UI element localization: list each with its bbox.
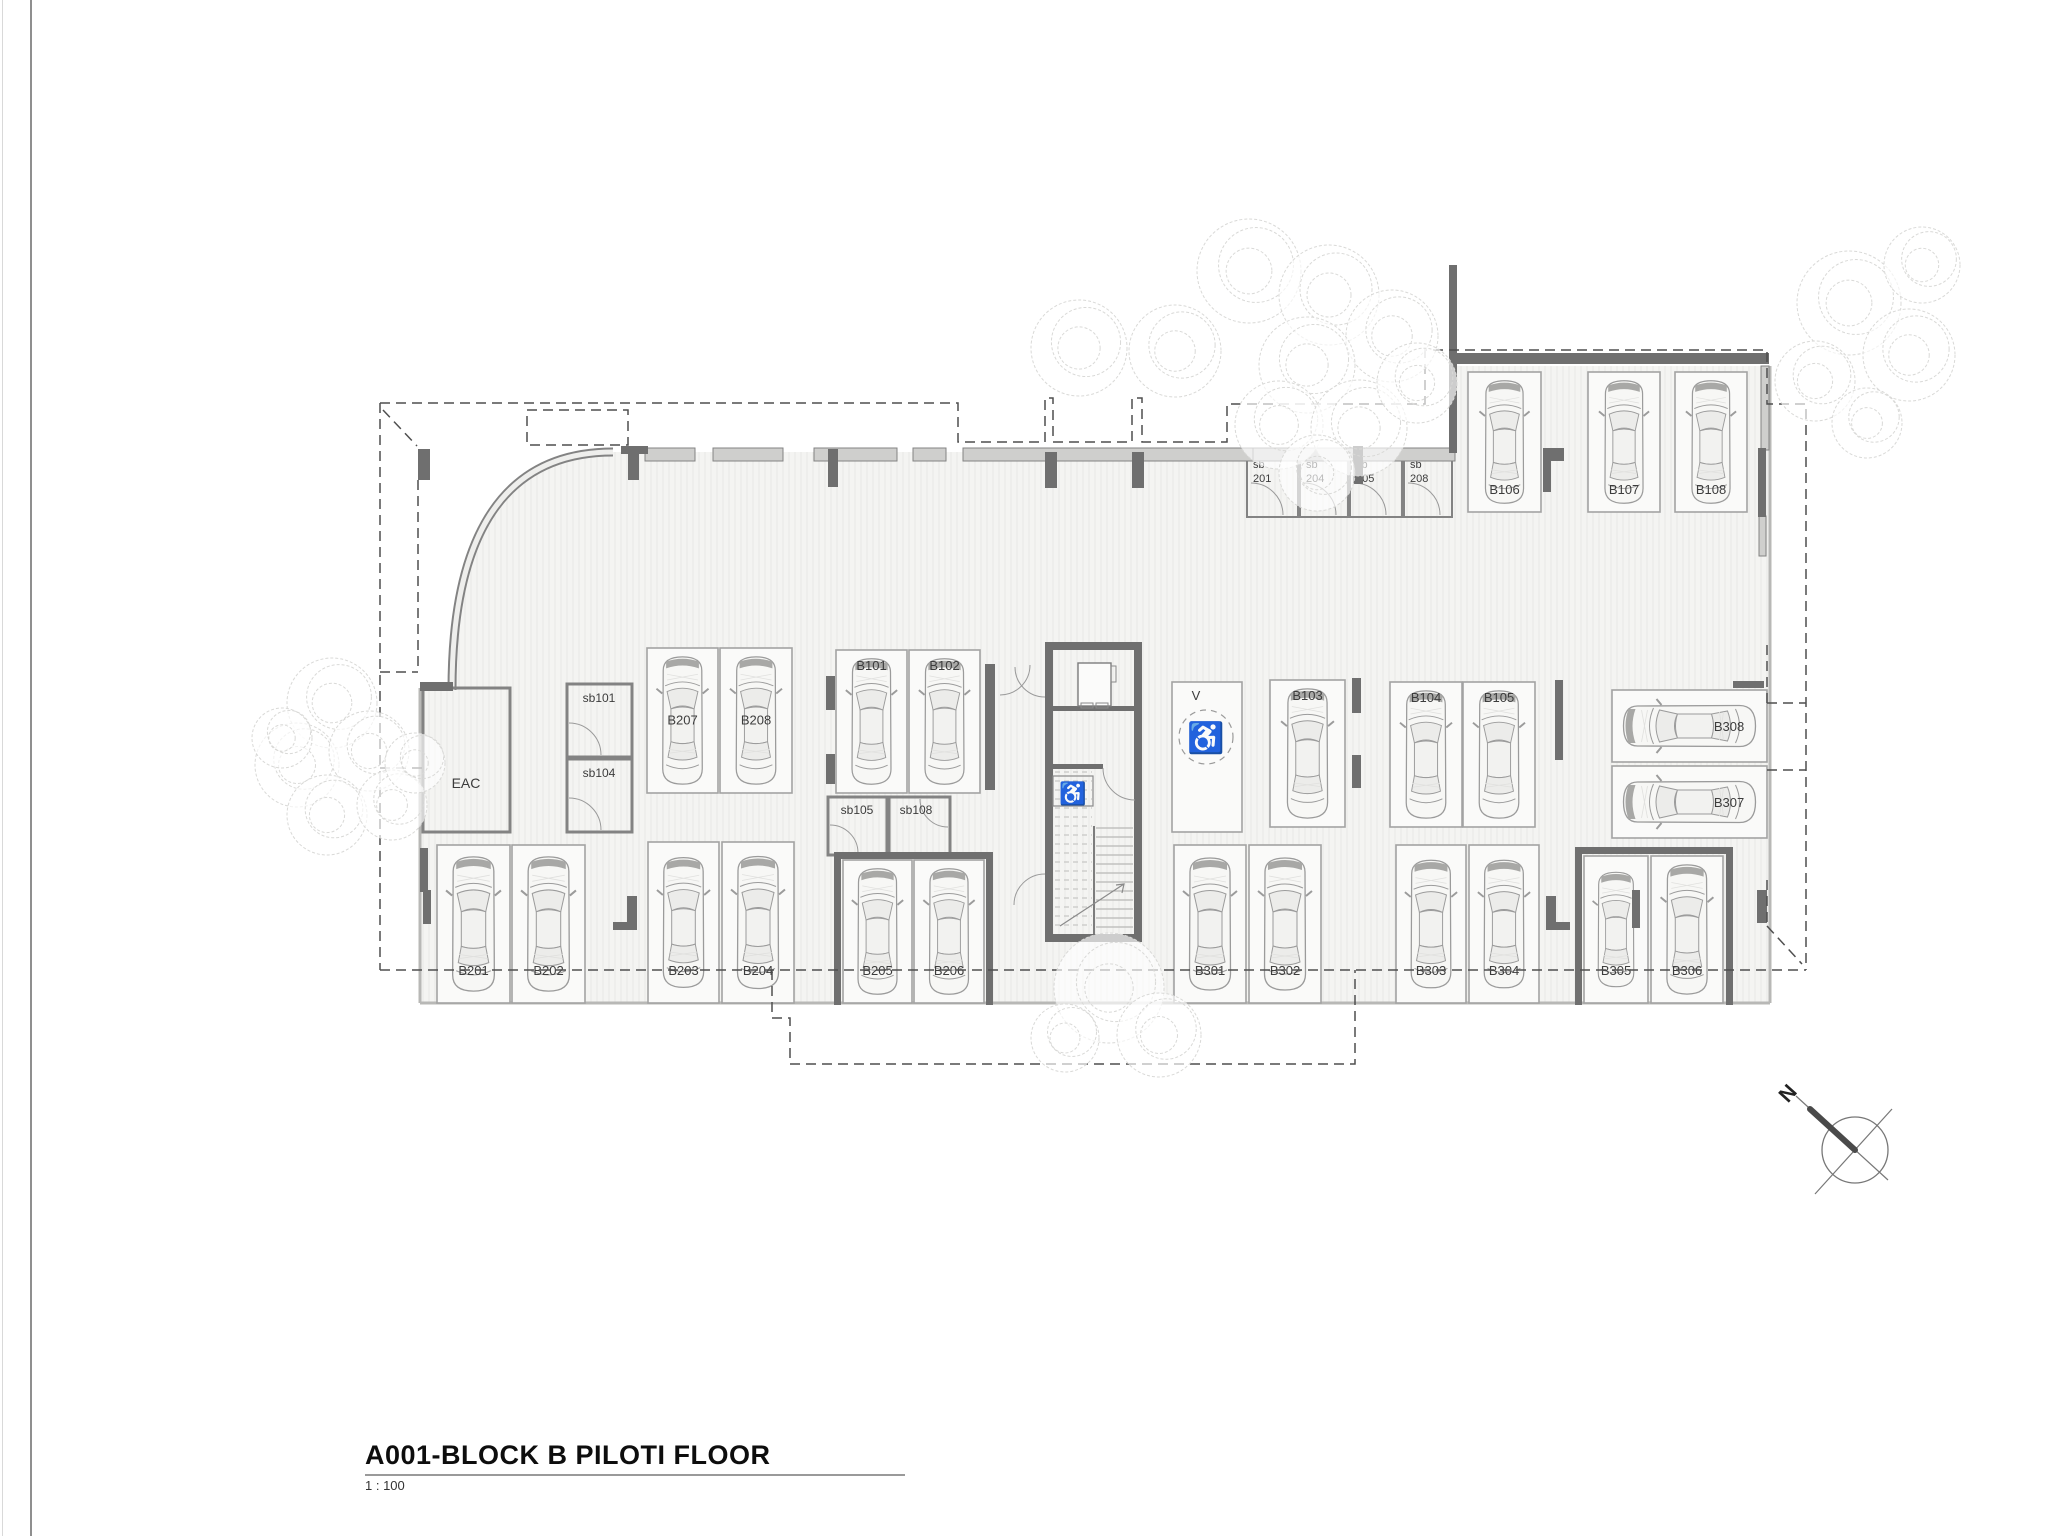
wall-column: [1575, 847, 1733, 854]
parking-stall-B302: B302: [1249, 845, 1321, 1003]
wall-column: [834, 852, 992, 859]
wall: [713, 448, 783, 461]
room-label: sb105: [841, 803, 874, 817]
parking-stall-B104: B104: [1390, 682, 1462, 827]
wall-column: [418, 449, 430, 480]
wall-column: [1758, 448, 1766, 517]
wall-column: [423, 890, 431, 924]
wall-column: [1045, 642, 1053, 942]
tree-icon: [1832, 388, 1902, 458]
parking-stall-B206: B206: [914, 860, 984, 1003]
wall-column: [1352, 755, 1361, 788]
stall-label: B102: [929, 658, 959, 673]
room-label: EAC: [452, 775, 481, 791]
wall-column: [1543, 448, 1564, 461]
wall-column: [1726, 847, 1733, 1005]
parking-stall-B107: B107: [1588, 372, 1660, 512]
wall-column: [1045, 764, 1103, 769]
parking-stall-B303: B303: [1396, 845, 1466, 1003]
tree-icon: [1377, 343, 1457, 423]
parking-stall-B203: B203: [648, 842, 719, 1003]
wall-column: [613, 922, 637, 930]
wall-column: [420, 682, 453, 691]
room-label: sb108: [900, 803, 933, 817]
drawing-scale: 1 : 100: [365, 1478, 910, 1493]
wall-column: [1053, 706, 1135, 711]
tree-icon: [385, 733, 445, 793]
parking-stall-B308: B308: [1612, 690, 1767, 762]
tree-icon: [1117, 993, 1201, 1077]
wall-column: [985, 664, 995, 790]
wheelchair-icon: ♿: [1059, 781, 1086, 806]
wall-column: [1575, 847, 1582, 1005]
stall-label: B105: [1484, 690, 1514, 705]
stall-label: V: [1192, 688, 1201, 703]
wall-column: [1452, 353, 1769, 364]
car-icon: [1400, 691, 1452, 818]
wall-column: [1632, 890, 1640, 928]
stall-outline: [1172, 682, 1242, 832]
stall-label: B207: [667, 713, 697, 728]
wall-column: [1546, 922, 1570, 930]
stall-label: B106: [1489, 482, 1519, 497]
stall-label: B307: [1714, 795, 1744, 810]
stall-label: B208: [741, 713, 771, 728]
title-underline: [365, 1474, 905, 1476]
stall-label: B107: [1609, 482, 1639, 497]
north-arrow: N: [1775, 1080, 1892, 1194]
tree-icon: [1031, 300, 1127, 396]
tree-icon: [1129, 305, 1221, 397]
tree-icon: [287, 775, 367, 855]
tree-icon: [1279, 435, 1355, 511]
parking-stall-B105: B105: [1463, 682, 1535, 827]
tree-icon: [1884, 227, 1960, 303]
stall-label: B101: [856, 658, 886, 673]
parking-stall-V: ♿V: [1172, 682, 1242, 832]
parking-stall-B102: B102: [909, 650, 980, 793]
room-label: sb104: [583, 766, 616, 780]
parking-stall-B301: B301: [1174, 845, 1246, 1003]
parking-stall-B108: B108: [1675, 372, 1747, 512]
wall-column: [1555, 680, 1563, 760]
car-icon: [846, 659, 897, 784]
car-icon: [919, 659, 970, 784]
elevator-cab: [1078, 663, 1111, 706]
stall-label: B308: [1714, 719, 1744, 734]
parking-stall-B101: B101: [836, 650, 907, 793]
parking-stall-B204: B204: [722, 842, 794, 1003]
parking-stall-B307: B307: [1612, 766, 1767, 838]
wall-column: [628, 452, 639, 480]
wall: [814, 448, 897, 461]
parking-stall-B201: B201: [437, 845, 510, 1003]
north-needle: [1810, 1109, 1855, 1150]
wall-column: [1352, 678, 1361, 713]
wall-column: [986, 852, 993, 1005]
boundary-dashed-line: [1767, 926, 1802, 964]
boundary-dashed-rect: [527, 410, 628, 445]
stall-label: B108: [1696, 482, 1726, 497]
car-icon: [1281, 689, 1334, 818]
wall: [1759, 516, 1766, 556]
tree-icon: [1863, 309, 1955, 401]
title-block: A001-BLOCK B PILOTI FLOOR 1 : 100: [365, 1440, 910, 1493]
wall-column: [1045, 642, 1142, 650]
parking-stall-B304: B304: [1469, 845, 1539, 1003]
boundary-dashed-line: [383, 410, 417, 446]
parking-stall-B202: B202: [512, 845, 585, 1003]
wall-column: [828, 449, 838, 487]
parking-stall-B306: B306: [1651, 856, 1723, 1003]
wall-column: [420, 848, 428, 892]
parking-stall-B305: B305: [1584, 856, 1648, 1003]
wheelchair-icon: ♿: [1187, 720, 1224, 755]
parking-stall-B208: B208: [720, 648, 792, 793]
wall-column: [1733, 681, 1764, 688]
parking-stall-B207: B207: [647, 648, 718, 793]
wall: [645, 448, 695, 461]
north-label: N: [1775, 1080, 1802, 1107]
wall-column: [826, 754, 835, 784]
stall-label: B103: [1292, 688, 1322, 703]
parking-stall-B106: B106: [1468, 372, 1541, 512]
room-label: sb101: [583, 691, 616, 705]
wall-column: [1132, 452, 1144, 488]
car-icon: [1473, 691, 1525, 818]
wall: [913, 448, 946, 461]
wall: [963, 448, 1253, 461]
wall: [1761, 366, 1769, 450]
drawing-title: A001-BLOCK B PILOTI FLOOR: [365, 1440, 910, 1471]
wall-column: [1757, 890, 1767, 923]
parking-stall-B205: B205: [843, 860, 912, 1003]
stall-label: B104: [1411, 690, 1441, 705]
wall-column: [1134, 642, 1142, 942]
tree-icon: [1031, 1004, 1099, 1072]
wall-column: [834, 852, 841, 1005]
wall-column: [1045, 452, 1057, 488]
tree-icon: [252, 708, 312, 768]
parking-stall-B103: B103: [1270, 680, 1345, 827]
floor-plan-canvas: B106B107B108B207B208B101B102♿VB103B104B1…: [0, 0, 2065, 1536]
wall-column: [826, 676, 835, 710]
